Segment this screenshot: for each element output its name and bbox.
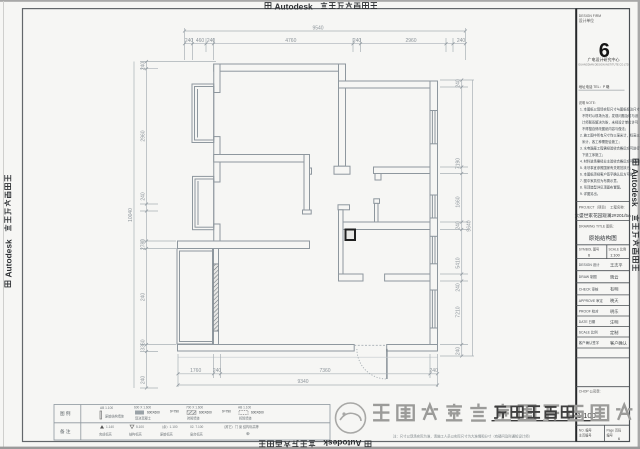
svg-text:240: 240 xyxy=(207,38,216,44)
svg-text:5.100: 5.100 xyxy=(136,425,144,429)
svg-text:240: 240 xyxy=(456,347,462,356)
svg-text:DATE 日期: DATE 日期 xyxy=(579,319,596,324)
svg-text:240: 240 xyxy=(456,283,462,292)
svg-text:700 X 1.600: 700 X 1.600 xyxy=(186,406,203,410)
svg-text:240: 240 xyxy=(141,293,147,302)
svg-text:计师联系解决为盼，未经设计单位许可: 计师联系解决为盼，未经设计单位许可 xyxy=(582,120,639,125)
svg-text:8. 吊顶造型详见顶面布置图。: 8. 吊顶造型详见顶面布置图。 xyxy=(580,185,623,190)
svg-text:GUANGDIAN DESIGN INSTITUTE CO.: GUANGDIAN DESIGN INSTITUTE CO.LTD xyxy=(578,62,629,66)
svg-text:客户确认: 客户确认 xyxy=(610,339,628,346)
svg-text:240: 240 xyxy=(141,192,147,201)
svg-text:现浇混凝土: 现浇混凝土 xyxy=(135,416,152,421)
svg-text:编号: 编号 xyxy=(607,433,613,438)
svg-text:600X600: 600X600 xyxy=(199,411,212,415)
svg-text:7. 图中家具仅为布置示意。: 7. 图中家具仅为布置示意。 xyxy=(580,178,620,183)
svg-text:460: 460 xyxy=(196,38,205,44)
svg-text:DRAW 制图: DRAW 制图 xyxy=(579,274,598,279)
svg-text:4. 材料进场需经业主验收合格后方可使用；: 4. 材料进场需经业主验收合格后方可使用； xyxy=(580,159,640,164)
svg-text:AB 1.100: AB 1.100 xyxy=(100,406,113,410)
svg-text:地址电话 TEL：P 略: 地址电话 TEL：P 略 xyxy=(579,84,610,89)
svg-text:1. 本图纸以现场实际尺寸与图纸标注尺寸: 1. 本图纸以现场实际尺寸与图纸标注尺寸 xyxy=(580,107,640,112)
svg-text:广电设计研究中心: 广电设计研究中心 xyxy=(588,56,620,62)
svg-text:9540: 9540 xyxy=(312,25,323,31)
svg-text:备 注: 备 注 xyxy=(60,428,71,435)
svg-text:晓云: 晓云 xyxy=(610,274,618,281)
svg-text:DESIGN 设计: DESIGN 设计 xyxy=(579,262,600,267)
svg-text:1:100: 1:100 xyxy=(610,254,620,258)
svg-text:设计单位: 设计单位 xyxy=(579,18,594,23)
svg-text:注：尺寸以现场实际为准，请施工人员以实际尺寸为大准绳和分寸（: 注：尺寸以现场实际为准，请施工人员以实际尺寸为大准绳和分寸（有疑问及时通知设计师… xyxy=(393,434,532,439)
svg-text:米计，各工种需配合施工；: 米计，各工种需配合施工； xyxy=(582,139,622,144)
svg-text:（其它）门 窗 结构标高等: （其它）门 窗 结构标高等 xyxy=(222,424,260,429)
svg-text:240: 240 xyxy=(185,38,194,44)
svg-text:主页编号: 主页编号 xyxy=(579,433,592,438)
svg-text:不得擅自修改图纸内容与做法；: 不得擅自修改图纸内容与做法； xyxy=(582,126,628,131)
svg-text:240: 240 xyxy=(141,376,147,385)
svg-text:9=790: 9=790 xyxy=(222,410,231,414)
svg-text:CHOP 公司章:: CHOP 公司章: xyxy=(579,389,601,394)
svg-text:有明: 有明 xyxy=(610,286,618,293)
svg-text:NO. 编号: NO. 编号 xyxy=(579,428,592,433)
svg-text:AB 1.100: AB 1.100 xyxy=(238,406,251,410)
svg-text:晓天: 晓天 xyxy=(610,297,619,304)
svg-text:4760: 4760 xyxy=(285,38,296,44)
svg-text:6: 6 xyxy=(588,254,590,258)
svg-text:DESIGN FIRM: DESIGN FIRM xyxy=(579,14,601,18)
svg-text:2. 施工图中所有尺寸均以毫米计，标高以: 2. 施工图中所有尺寸均以毫米计，标高以 xyxy=(580,133,640,138)
svg-text:SCALE 比例: SCALE 比例 xyxy=(579,329,598,334)
svg-text:PROOF 校对: PROOF 校对 xyxy=(579,308,599,313)
svg-text:240: 240 xyxy=(457,38,466,44)
svg-text:说明 NOTE:: 说明 NOTE: xyxy=(579,100,596,105)
svg-text:9340: 9340 xyxy=(297,379,308,385)
svg-text:600X600: 600X600 xyxy=(251,411,264,415)
svg-text:5. 未尽事宜参照国家有关规范执行；: 5. 未尽事宜参照国家有关规范执行； xyxy=(580,165,633,170)
svg-text:客户确认签字: 客户确认签字 xyxy=(579,340,600,345)
svg-text:SCALE 比例: SCALE 比例 xyxy=(609,247,627,252)
svg-text:1660: 1660 xyxy=(456,196,462,207)
svg-text:1.140: 1.140 xyxy=(106,425,114,429)
svg-text:Page 页码: Page 页码 xyxy=(607,428,622,433)
svg-text:2780: 2780 xyxy=(141,239,147,250)
svg-text:7190: 7190 xyxy=(456,158,462,169)
svg-text:240: 240 xyxy=(213,368,222,374)
svg-text:6: 6 xyxy=(618,437,620,441)
svg-text:3. 水电隐蔽工程需经验收合格后方可进行: 3. 水电隐蔽工程需经验收合格后方可进行 xyxy=(580,146,640,151)
svg-text:2960: 2960 xyxy=(405,38,416,44)
svg-text:240: 240 xyxy=(456,221,462,230)
svg-text:APPROVE 审定: APPROVE 审定 xyxy=(579,298,604,303)
svg-text:1760: 1760 xyxy=(190,368,201,374)
svg-text:王志平: 王志平 xyxy=(610,261,623,268)
svg-text:9. 详图另出。: 9. 详图另出。 xyxy=(580,191,600,196)
svg-text:10040: 10040 xyxy=(128,208,134,222)
svg-text:02. 7.100: 02. 7.100 xyxy=(190,425,204,429)
svg-text:7210: 7210 xyxy=(456,306,462,317)
svg-text:PROJECT（项目） 工程名称:: PROJECT（项目） 工程名称: xyxy=(579,205,625,210)
svg-text:窗台标高: 窗台标高 xyxy=(190,432,203,437)
svg-text:下道工序施工；: 下道工序施工； xyxy=(582,152,605,157)
svg-text:拆除墙体: 拆除墙体 xyxy=(239,416,253,421)
svg-text:600X600: 600X600 xyxy=(147,411,160,415)
svg-text:定制: 定制 xyxy=(610,329,618,336)
svg-text:⊕: ⊕ xyxy=(246,431,250,436)
svg-text:（余）1.100: （余）1.100 xyxy=(160,424,178,429)
svg-text:240: 240 xyxy=(456,79,462,88)
svg-text:DRAWING TITLE 图名:: DRAWING TITLE 图名: xyxy=(579,224,614,229)
svg-text:240: 240 xyxy=(141,62,147,71)
svg-text:600 X 1.600: 600 X 1.600 xyxy=(134,406,151,410)
svg-text:大盛世家花园观澜2#201/5A: 大盛世家花园观澜2#201/5A xyxy=(575,212,632,219)
svg-text:注明: 注明 xyxy=(610,318,618,325)
svg-text:7360: 7360 xyxy=(319,368,330,374)
svg-text:2960: 2960 xyxy=(141,130,147,141)
svg-text:240: 240 xyxy=(430,368,439,374)
svg-text:5410: 5410 xyxy=(456,257,462,268)
svg-text:9=790: 9=790 xyxy=(170,410,179,414)
svg-text:完成标高: 完成标高 xyxy=(99,432,112,437)
svg-text:SYMBOL 图号: SYMBOL 图号 xyxy=(579,247,599,252)
svg-text:明乐: 明乐 xyxy=(610,308,618,315)
svg-text:240: 240 xyxy=(353,38,362,44)
svg-text:原始标高: 原始标高 xyxy=(160,432,173,437)
svg-text:9640: 9640 xyxy=(467,220,473,231)
svg-text:结构标高: 结构标高 xyxy=(129,432,142,437)
svg-text:CHECK 审核: CHECK 审核 xyxy=(579,286,599,291)
svg-text:原始结构图: 原始结构图 xyxy=(589,234,617,242)
svg-text:图 例: 图 例 xyxy=(60,410,71,417)
svg-text:不符时以现场为准，发现问题及时与设: 不符时以现场为准，发现问题及时与设 xyxy=(582,113,639,118)
svg-text:3360: 3360 xyxy=(141,339,147,350)
svg-text:原始结构墙体: 原始结构墙体 xyxy=(105,414,125,419)
svg-text:砖砌墙体: 砖砌墙体 xyxy=(187,416,201,421)
